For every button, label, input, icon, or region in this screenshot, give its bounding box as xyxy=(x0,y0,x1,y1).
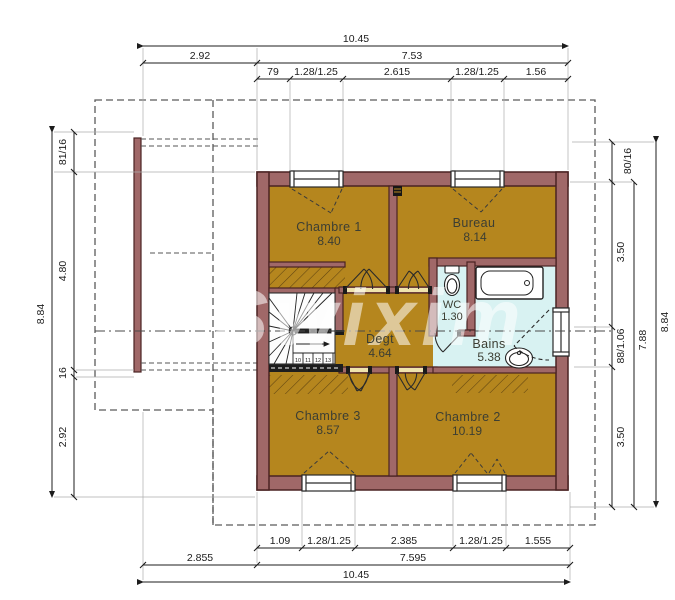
stair-threshold xyxy=(269,364,343,372)
dim-label: 1.28/1.25 xyxy=(455,66,499,78)
dim-label: 1.555 xyxy=(525,535,551,547)
room-label-degt: Degt xyxy=(366,332,394,346)
wall-bains-bottom xyxy=(433,367,556,373)
room-area-chambre3: 8.57 xyxy=(316,423,340,437)
room-label-bureau: Bureau xyxy=(453,216,496,230)
dim-label: 3.50 xyxy=(615,427,627,448)
dim-label: 1.56 xyxy=(526,66,547,78)
dim-label: 7.595 xyxy=(400,552,426,564)
dim-label: 2.385 xyxy=(391,535,417,547)
dim-top: 10.45 2.92 7.53 79 1.28/1.25 2.615 1.28/… xyxy=(190,33,547,78)
dim-label: 79 xyxy=(267,66,279,78)
dim-label: 3.50 xyxy=(615,242,627,263)
window-bottom-chambre2 xyxy=(453,475,506,491)
room-area-chambre1: 8.40 xyxy=(317,234,341,248)
dim-label: 88/1.06 xyxy=(615,328,627,363)
dim-label: 1.09 xyxy=(270,535,291,547)
window-bottom-chambre3 xyxy=(302,475,355,491)
dim-bottom: 1.09 1.28/1.25 2.385 1.28/1.25 1.555 2.8… xyxy=(187,535,551,581)
window-top-chambre1 xyxy=(290,171,343,187)
wall-bureau-bains xyxy=(429,258,556,266)
dim-label: 4.80 xyxy=(57,261,69,282)
room-area-bureau: 8.14 xyxy=(463,230,487,244)
room-label-chambre1: Chambre 1 xyxy=(296,220,361,234)
room-label-chambre2: Chambre 2 xyxy=(435,410,500,424)
floor-plan-canvas: 10 11 12 13 xyxy=(0,0,675,600)
room-area-bains: 5.38 xyxy=(477,350,501,364)
dim-label: 7.88 xyxy=(637,330,649,351)
dim-label: 8.84 xyxy=(35,304,47,325)
room-label-wc: WC xyxy=(443,299,461,311)
duct-icon xyxy=(393,186,402,196)
dim-label: 7.53 xyxy=(402,50,423,62)
dim-label: 1.28/1.25 xyxy=(307,535,351,547)
room-area-chambre2: 10.19 xyxy=(452,424,482,438)
dim-label: 80/16 xyxy=(622,148,634,174)
room-area-degt: 4.64 xyxy=(368,346,392,360)
dim-label: 2.615 xyxy=(384,66,410,78)
room-label-bains: Bains xyxy=(472,337,505,351)
floor-plan-drawing: 10 11 12 13 xyxy=(0,0,675,600)
room-label-chambre3: Chambre 3 xyxy=(295,409,360,423)
dim-label: 2.92 xyxy=(57,427,69,448)
window-right-bains xyxy=(553,308,569,356)
dim-label: 2.855 xyxy=(187,552,213,564)
dim-label: 10.45 xyxy=(343,569,369,581)
dim-label: 81/16 xyxy=(57,139,69,165)
dim-right: 80/16 3.50 88/1.06 3.50 7.88 8.84 xyxy=(615,148,671,448)
dim-label: 16 xyxy=(57,367,69,379)
dim-label: 10.45 xyxy=(343,33,369,45)
wall-chambre3-chambre2 xyxy=(389,367,397,476)
window-top-bureau xyxy=(451,171,504,187)
dim-label: 2.92 xyxy=(190,50,211,62)
dim-label: 1.28/1.25 xyxy=(294,66,338,78)
room-area-wc: 1.30 xyxy=(441,311,462,323)
dim-label: 8.84 xyxy=(659,312,671,333)
dim-label: 1.28/1.25 xyxy=(459,535,503,547)
terrace-wall xyxy=(134,138,141,372)
